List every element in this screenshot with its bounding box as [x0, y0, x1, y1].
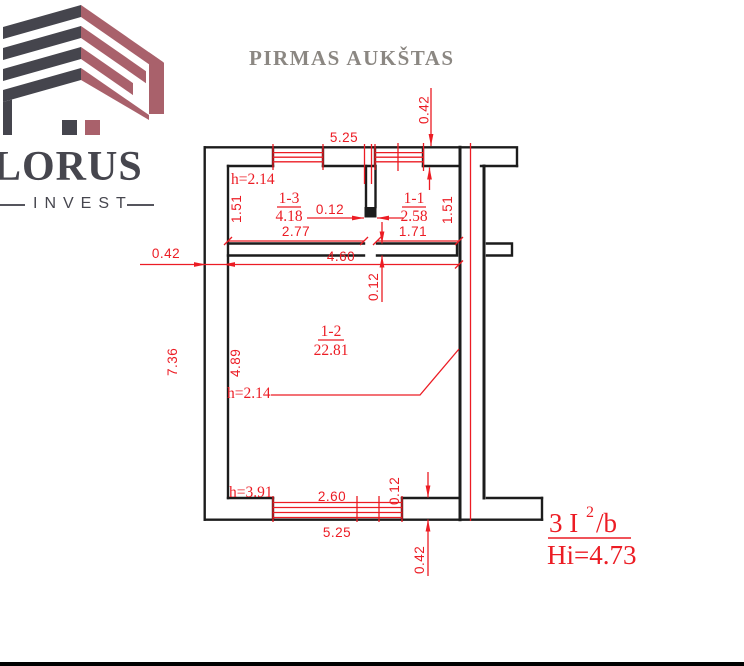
dim-left-height: 7.36 — [165, 348, 180, 376]
room13-height-note: h=2.14 — [231, 171, 275, 188]
room13-area: 4.18 — [275, 208, 302, 225]
dim-room11-width: 1.71 — [399, 224, 427, 239]
ceiling-height-line — [271, 349, 459, 395]
room12-area: 22.81 — [314, 342, 349, 359]
building-height-note: Hi=4.73 — [547, 540, 636, 570]
building-class-prefix: 3 I — [549, 508, 578, 538]
dim-bottom-mullion: 0.12 — [387, 477, 402, 505]
walls — [205, 147, 542, 519]
low-ceiling-note: h=3.91 — [229, 484, 273, 501]
dim-room13-width: 2.77 — [282, 224, 310, 239]
dim-bottom-width: 5.25 — [323, 525, 351, 540]
room11-id: 1-1 — [404, 190, 425, 207]
building-class-superscript: 2 — [586, 504, 594, 521]
dim-bottom-wall-thickness: 0.42 — [412, 546, 427, 574]
dimension-labels: 5.25 0.42 h=2.14 1.51 1-3 4.18 0.12 1-1 … — [152, 96, 637, 574]
room13-id: 1-3 — [279, 190, 300, 207]
room11-area: 2.58 — [400, 208, 427, 225]
dim-room13-depth: 1.51 — [229, 195, 244, 223]
page: LORUS INVEST PIRMAS AUKŠTAS — [0, 0, 744, 666]
dim-interior-wall-thickness: 0.12 — [366, 273, 381, 301]
dim-bottom-window: 2.60 — [318, 489, 346, 504]
room12-id: 1-2 — [321, 323, 342, 340]
dim-top-width: 5.25 — [330, 130, 358, 145]
dim-room12-depth: 4.89 — [228, 349, 243, 377]
dim-room11-depth: 1.51 — [440, 196, 455, 224]
room12-height-note: h=2.14 — [227, 385, 271, 402]
bottom-bar — [0, 662, 744, 666]
dim-left-wall-thickness: 0.42 — [152, 246, 180, 261]
floor-plan: 5.25 0.42 h=2.14 1.51 1-3 4.18 0.12 1-1 … — [0, 0, 744, 666]
dim-top-wall-thickness: 0.42 — [417, 96, 432, 124]
dim-interior-width: 4.60 — [327, 249, 355, 264]
dim-partition-thickness: 0.12 — [316, 202, 344, 217]
building-class-suffix: /b — [596, 508, 617, 538]
